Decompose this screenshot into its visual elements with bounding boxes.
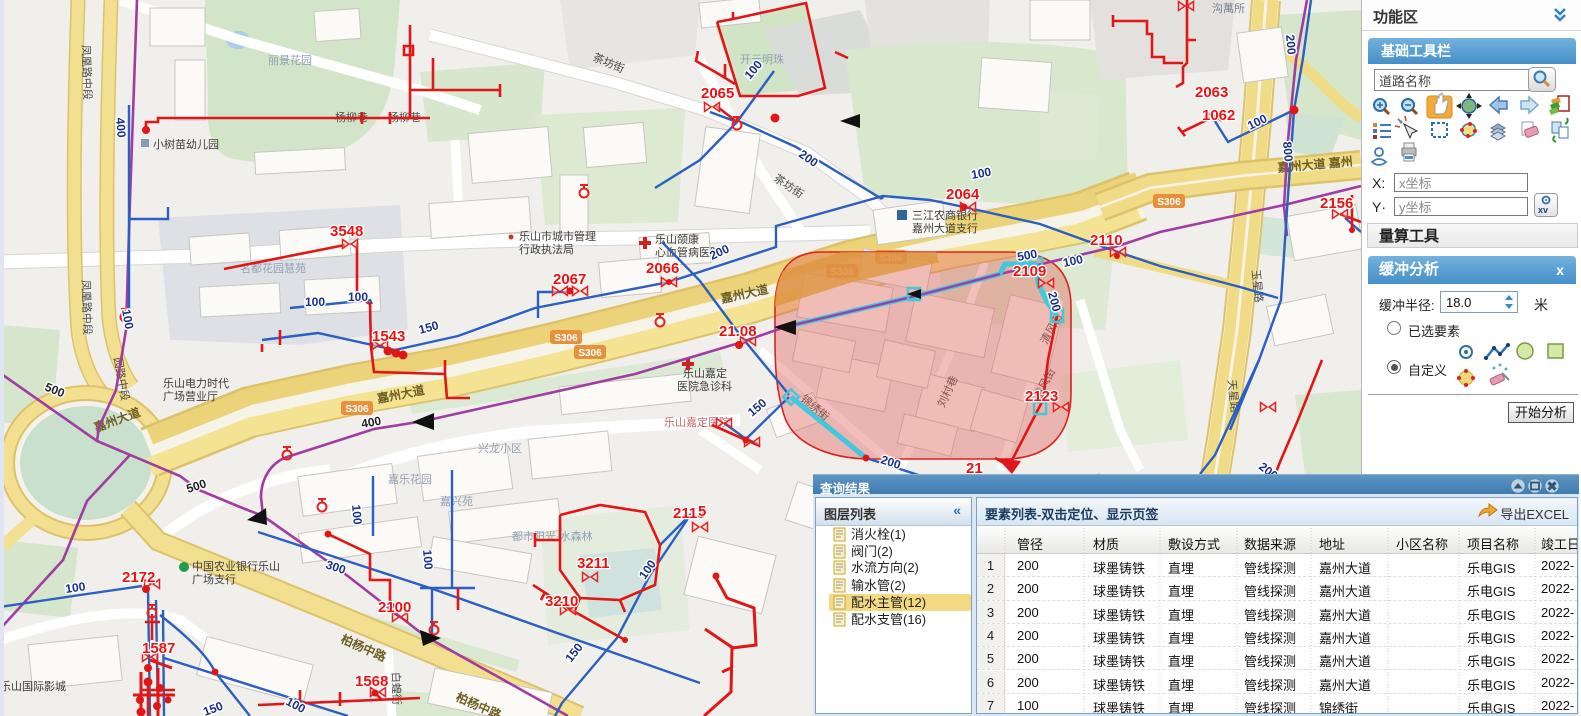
svg-text:1543: 1543 bbox=[372, 328, 405, 345]
svg-text:xv: xv bbox=[1538, 205, 1548, 215]
svg-text:广场支行: 广场支行 bbox=[192, 572, 236, 586]
svg-text:2156: 2156 bbox=[1320, 195, 1353, 212]
svg-text:嘉乐花园: 嘉乐花园 bbox=[388, 472, 432, 486]
svg-text:2100: 2100 bbox=[378, 599, 411, 616]
svg-text:2063: 2063 bbox=[1195, 84, 1228, 101]
svg-text:800: 800 bbox=[1280, 141, 1296, 162]
svg-text:1062: 1062 bbox=[1202, 107, 1235, 124]
svg-text:S306: S306 bbox=[345, 404, 369, 415]
svg-text:3548: 3548 bbox=[330, 223, 363, 240]
svg-text:1587: 1587 bbox=[142, 640, 175, 657]
svg-text:沟萬所: 沟萬所 bbox=[1212, 2, 1245, 15]
svg-text:2172: 2172 bbox=[122, 569, 155, 586]
svg-text:乐山国际影城: 乐山国际影城 bbox=[0, 680, 66, 693]
svg-text:100: 100 bbox=[305, 295, 325, 309]
svg-text:100: 100 bbox=[348, 290, 368, 304]
svg-text:2109: 2109 bbox=[1013, 263, 1046, 280]
svg-text:兴龙小区: 兴龙小区 bbox=[478, 442, 522, 455]
svg-text:医院急诊科: 医院急诊科 bbox=[677, 379, 732, 393]
svg-text:100: 100 bbox=[420, 549, 436, 570]
svg-text:5: 5 bbox=[698, 503, 706, 520]
svg-text:100: 100 bbox=[64, 579, 86, 596]
svg-text:100: 100 bbox=[349, 504, 365, 525]
svg-text:小树苗幼儿园: 小树苗幼儿园 bbox=[153, 137, 219, 151]
svg-text:2065: 2065 bbox=[701, 85, 734, 102]
svg-text:S306: S306 bbox=[554, 333, 578, 344]
svg-text:行政执法局: 行政执法局 bbox=[519, 242, 574, 256]
svg-text:输水管(2): 输水管(2) bbox=[851, 578, 906, 593]
svg-text:中国农业银行乐山: 中国农业银行乐山 bbox=[192, 559, 280, 573]
svg-text:配水主管(12): 配水主管(12) bbox=[851, 595, 926, 610]
svg-text:S306: S306 bbox=[1157, 197, 1181, 208]
svg-text:S306: S306 bbox=[578, 348, 602, 359]
svg-text:400: 400 bbox=[113, 117, 129, 138]
svg-text:乐山市城市管理: 乐山市城市管理 bbox=[519, 229, 596, 243]
svg-text:2064: 2064 bbox=[946, 186, 980, 203]
svg-text:开元明珠: 开元明珠 bbox=[740, 52, 784, 66]
svg-text:消火栓(1): 消火栓(1) bbox=[851, 527, 906, 542]
svg-text:3211: 3211 bbox=[577, 555, 610, 572]
svg-text:嘉州大道支行: 嘉州大道支行 bbox=[912, 221, 978, 235]
svg-text:2067: 2067 bbox=[553, 271, 586, 288]
svg-text:乐山颌康: 乐山颌康 bbox=[655, 232, 699, 246]
svg-text:2066: 2066 bbox=[646, 260, 679, 277]
svg-text:200: 200 bbox=[1283, 34, 1299, 55]
svg-text:1568: 1568 bbox=[355, 673, 388, 690]
svg-text:三江农商银行: 三江农商银行 bbox=[912, 208, 978, 222]
svg-text:3210: 3210 bbox=[545, 593, 578, 610]
svg-text:嘉兴苑: 嘉兴苑 bbox=[440, 494, 473, 508]
svg-text:21.08: 21.08 bbox=[719, 323, 757, 340]
svg-text:2110: 2110 bbox=[1090, 232, 1123, 249]
svg-text:乐山电力时代: 乐山电力时代 bbox=[163, 377, 229, 390]
svg-text:阀门(2): 阀门(2) bbox=[851, 544, 893, 559]
svg-text:水流方向(2): 水流方向(2) bbox=[851, 560, 919, 575]
svg-text:广场营业厅: 广场营业厅 bbox=[163, 389, 218, 403]
svg-text:2123: 2123 bbox=[1025, 388, 1058, 405]
svg-text:配水支管(16): 配水支管(16) bbox=[851, 612, 926, 627]
svg-text:丽景花园: 丽景花园 bbox=[268, 54, 312, 67]
